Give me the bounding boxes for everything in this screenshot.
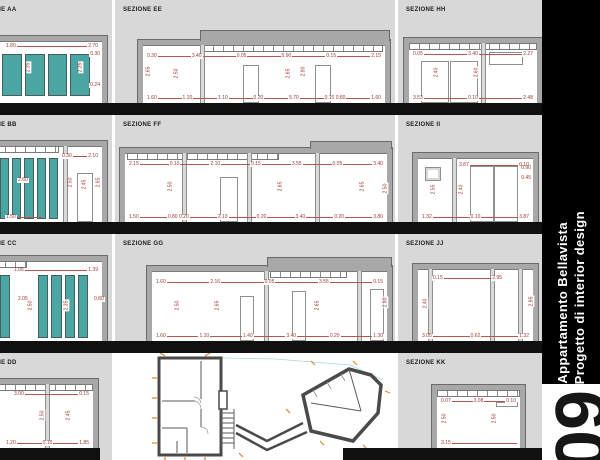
bottom-dimensions: 1.50 (5, 214, 42, 221)
dimension-label: 3.00 (13, 392, 25, 397)
dimension-label: 3.53 (412, 96, 424, 101)
cabinet-door (70, 54, 90, 96)
dimension-label: 1.60 (370, 96, 382, 101)
sheet-number: 09 (553, 390, 600, 460)
section-drawing-dd: 3.000.15 1.200.101.85 2.50 2.45 (0, 379, 98, 448)
dimension-label: 1.10 (198, 334, 210, 339)
section-drawing-aa: 1.802.70 2.35 2.35 0.30 0.24 (0, 36, 107, 103)
dimension-label: 2.16 (209, 280, 221, 285)
dimension-label: 1.20 (5, 441, 17, 446)
floor-plan-drawing (115, 353, 395, 460)
dimension-label: 0.20 (329, 334, 341, 339)
panel-key-plan (115, 353, 395, 460)
dimension-label: 2.50 (68, 177, 73, 189)
dimension-label: 0.05 (264, 280, 276, 285)
dimension-label: 3.40 (295, 215, 307, 220)
raised-ceiling (267, 257, 392, 267)
section-drawing-gg: 1.602.160.053.550.15 1.601.101.403.400.2… (147, 266, 392, 341)
dimension-label: 1.32 (518, 334, 530, 339)
ceiling-grid (0, 146, 59, 153)
section-title-hh: SEZIONE HH (406, 7, 446, 13)
section-drawing-ff: 2.150.102.100.153.550.053.40 1.500.80 0.… (120, 148, 392, 222)
dimension-label: 0.30 (146, 54, 158, 59)
dimension-label: 2.45 (82, 179, 87, 191)
cabinet-door (24, 158, 33, 219)
cabinet-door (2, 54, 22, 96)
section-title-jj: SEZIONE JJ (406, 241, 444, 247)
dimension-label: 2.48 (522, 96, 534, 101)
section-drawing-hh: 0.053.402.27 3.530.102.48 2.40 2.60 (404, 38, 542, 103)
floor-slab-dd (0, 448, 100, 460)
section-drawing-cc: 1.061.39 2.05 0.80 2.50 2.35 (0, 256, 107, 341)
dimension-label: 0.10 (169, 162, 181, 167)
dimension-label: 2.50 (28, 299, 33, 311)
dimension-label: 1.60 (146, 96, 158, 101)
dimension-label: 0.30 (89, 52, 101, 57)
dimension-label: 2.65 (96, 177, 101, 189)
dimension-label: 2.65 (146, 66, 151, 78)
dimension-label: 0.20 (256, 215, 268, 220)
panel-sezione-jj: SEZIONE JJ 0.152.95 3.050.621.32 2.40 2.… (398, 234, 542, 341)
project-titles: Appartamento Bellavista Progetto di inte… (542, 211, 600, 384)
dimension-label: 1.50 (128, 215, 140, 220)
section-drawing-ii: 3.870.10 1.320.103.87 2.55 2.40 0.90 0.4… (413, 153, 538, 222)
plan-right-room (303, 369, 381, 441)
wardrobe-doors (2, 54, 90, 96)
panel-sezione-hh: SEZIONE HH 0.053.402.27 3.530.102.48 2.4… (398, 0, 542, 103)
dimension-label: 2.45 (66, 409, 71, 421)
dimension-label: 2.50 (174, 68, 179, 80)
panel-sezione-cc: SEZIONE CC 1.061.39 2.05 0.80 2.50 2.35 (0, 234, 112, 341)
dimension-label: 2.35 (64, 299, 69, 311)
wardrobe-doors (0, 158, 58, 219)
dimension-label: 2.10 (209, 162, 221, 167)
plan-left-block (159, 358, 221, 455)
section-title-ee: SEZIONE EE (123, 7, 162, 13)
dimension-label: 0.10 (470, 215, 482, 220)
interior-wall (518, 269, 523, 341)
dimension-label: 0.10 (467, 96, 479, 101)
top-dimensions: 2.150.102.100.153.550.053.40 (128, 161, 384, 168)
section-title-dd: SEZIONE DD (0, 360, 17, 366)
top-dimensions: 0.152.95 (432, 275, 503, 282)
dimension-label: 0.45 (520, 176, 532, 181)
dimension-label: 0.10 0.80 (324, 96, 347, 101)
project-name: Appartamento Bellavista (555, 222, 570, 384)
dimension-label: 2.95 (491, 276, 503, 281)
dimension-label: 2.90 (383, 297, 388, 309)
dimension-label: 2.27 (522, 52, 534, 57)
dimension-label: 2.50 (168, 181, 173, 193)
dimension-label: 1.60 (155, 280, 167, 285)
dimension-label: 2.50 (492, 413, 497, 425)
dimension-label: 3.05 (421, 334, 433, 339)
dimension-label: 1.32 (421, 215, 433, 220)
top-dimensions: 3.870.10 (458, 162, 530, 169)
dimension-label: 0.62 (470, 334, 482, 339)
bottom-dimensions: 1.320.103.87 (421, 214, 530, 221)
dimension-label: 3.55 (291, 162, 303, 167)
dimension-label: 3.40 (467, 52, 479, 57)
top-dimensions: 1.061.39 (13, 267, 99, 274)
dimension-label: 3.15 (440, 441, 452, 446)
dimension-label: 0.15 (372, 280, 384, 285)
section-title-aa: SEZIONE AA (0, 7, 16, 13)
dimension-label: 3.55 (318, 280, 330, 285)
floor-slab-row2 (0, 222, 542, 234)
top-dimensions: 0.073.080.10 (440, 398, 517, 405)
dimension-label: 2.65 (360, 181, 365, 193)
staircase (221, 409, 234, 449)
dimension-label: 1.10 (182, 96, 194, 101)
dimension-label: 2.65 (215, 299, 220, 311)
dimension-label: 2.55 (431, 183, 436, 195)
project-subtitle: Progetto di interior design (572, 211, 587, 384)
section-title-gg: SEZIONE GG (123, 241, 163, 247)
dimension-label: 0.15 (78, 392, 90, 397)
dimension-label: 2.65 (315, 299, 320, 311)
dimension-label: 2.50 (383, 183, 388, 195)
dimension-label: 1.50 (5, 215, 17, 220)
dimension-label: 3.87 (458, 163, 470, 168)
section-drawing-jj: 0.152.95 3.050.621.32 2.40 2.95 (413, 264, 538, 341)
top-dimensions: 0.303.400.055.900.152.15 (146, 53, 382, 60)
dimension-label: 0.24 (89, 83, 101, 88)
panel-sezione-aa: SEZIONE AA 1.802.70 2.35 2.35 0.30 0.24 (0, 0, 112, 103)
ceiling-grid (270, 271, 347, 278)
dimension-label: 5.90 (281, 54, 293, 59)
dimension-label: 2.60 (474, 67, 479, 79)
dimension-label: 0.10 (42, 441, 54, 446)
dimension-label: 0.05 (236, 54, 248, 59)
dimension-label: 2.65 (286, 68, 291, 80)
dimension-label: 0.90 (520, 166, 532, 171)
raised-ceiling (200, 30, 390, 41)
dimension-label: 2.60 (17, 178, 29, 183)
dimension-label: 0.15 (325, 54, 337, 59)
cabinet-door (0, 275, 10, 338)
bottom-dimensions: 3.050.621.32 (421, 333, 530, 340)
dimension-label: 2.40 (434, 67, 439, 79)
bottom-dimensions: 3.530.102.48 (412, 95, 534, 102)
section-drawing-bb: 0.302.10 1.50 2.60 2.50 2.45 2.65 (0, 141, 107, 222)
dimension-label: 2.10 (217, 215, 229, 220)
top-dimensions: 0.053.402.27 (412, 51, 534, 58)
bottom-dimensions: 1.601.101.403.400.201.30 (155, 333, 384, 340)
wall-picture (425, 167, 441, 181)
dimension-label: 1.60 (155, 334, 167, 339)
dimension-label: 1.06 (13, 268, 25, 273)
dimension-label: 0.07 (440, 399, 452, 404)
dimension-label: 2.50 (175, 299, 180, 311)
drawing-sheet: SEZIONE AA 1.802.70 2.35 2.35 0.30 0.24 … (0, 0, 600, 460)
wardrobe-door-edge (0, 275, 10, 338)
section-drawing-ee: 0.303.400.055.900.152.15 1.601.101.100.2… (138, 40, 390, 103)
bottom-dimensions: 1.200.101.85 (5, 440, 90, 447)
bottom-dimensions: 1.601.101.100.205.700.10 0.801.60 (146, 95, 382, 102)
dimension-label: 1.30 (372, 334, 384, 339)
section-title-kk: SEZIONE KK (406, 360, 446, 366)
panel-sezione-ee: SEZIONE EE 0.303.400.055.900.152.15 1.60… (115, 0, 395, 103)
top-dimensions: 1.802.70 (5, 43, 99, 50)
dimension-label: 1.10 (217, 96, 229, 101)
section-title-cc: SEZIONE CC (0, 241, 17, 247)
dimension-label: 3.87 (518, 215, 530, 220)
cabinet-door (12, 158, 21, 219)
section-title-ii: SEZIONE II (406, 122, 440, 128)
cabinet-door (25, 54, 45, 96)
floor-slab-row3 (0, 341, 542, 353)
cabinet-door (38, 275, 48, 338)
floor-slab-kk (343, 448, 542, 460)
dimension-label: 2.50 (442, 413, 447, 425)
dimension-label: 2.90 (301, 66, 306, 78)
bottom-dimensions: 1.500.80 0.202.100.203.400.203.80 (128, 214, 384, 221)
dimension-label: 2.35 (26, 61, 31, 73)
dimension-label: 0.20 (253, 96, 265, 101)
dimension-label: 1.40 (242, 334, 254, 339)
ceiling-grid (127, 153, 279, 160)
dimension-label: 2.70 (87, 44, 99, 49)
dimension-label: 0.15 (432, 276, 444, 281)
dimension-label: 0.15 (250, 162, 262, 167)
cabinet-door (49, 158, 58, 219)
dimension-label: 3.40 (372, 162, 384, 167)
floor-slab-row1 (0, 103, 542, 115)
cabinet-door (78, 275, 88, 338)
panel-sezione-bb: SEZIONE BB 0.302.10 1.50 2.60 2.50 2.45 … (0, 115, 112, 222)
top-dimensions: 0.302.10 (61, 153, 99, 160)
panel-sezione-dd: SEZIONE DD 3.000.15 1.200.101.85 2.50 2.… (0, 353, 112, 460)
dimension-label: 2.40 (459, 183, 464, 195)
dimension-label: 0.05 (332, 162, 344, 167)
ceiling-grid (203, 45, 383, 52)
dimension-label: 1.39 (87, 268, 99, 273)
cabinet-door (37, 158, 46, 219)
dimension-label: 5.70 (288, 96, 300, 101)
interior-wall (452, 158, 457, 222)
sheet-number-corner: 09 (542, 384, 600, 460)
section-title-ff: SEZIONE FF (123, 122, 161, 128)
dimension-label: 0.80 (93, 297, 105, 302)
panel-sezione-gg: SEZIONE GG 1.602.160.053.550.15 1.601.10… (115, 234, 395, 341)
dimension-label: 0.10 (505, 399, 517, 404)
section-drawing-kk: 0.073.080.10 3.15 2.50 2.50 (432, 385, 525, 448)
dimension-label: 2.15 (370, 54, 382, 59)
dimension-label: 2.15 (128, 162, 140, 167)
dimension-label: 0.30 (61, 154, 73, 159)
dimension-label: 2.95 (529, 296, 534, 308)
section-title-bb: SEZIONE BB (0, 122, 17, 128)
raised-ceiling (310, 141, 392, 149)
panel-sezione-kk: SEZIONE KK 0.073.080.10 3.15 2.50 2.50 (398, 353, 542, 460)
dimension-label: 3.40 (285, 334, 297, 339)
dimension-label: 0.20 (333, 215, 345, 220)
dimension-label: 1.85 (78, 441, 90, 446)
panel-sezione-ff: SEZIONE FF 2.150.102.100.153.550.053.40 … (115, 115, 395, 222)
dimension-label: 2.35 (78, 61, 83, 73)
ceiling-grid (409, 43, 537, 50)
cabinet-door (48, 54, 68, 96)
dimension-label: 3.08 (473, 399, 485, 404)
dimension-label: 2.50 (40, 409, 45, 421)
top-dimensions: 3.000.15 (13, 391, 90, 398)
dimension-label: 3.80 (372, 215, 384, 220)
corridor-walls (236, 423, 307, 450)
top-dimensions: 1.602.160.053.550.15 (155, 279, 384, 286)
dimension-label: 3.40 (191, 54, 203, 59)
dimension-label: 2.10 (87, 154, 99, 159)
dimension-label: 0.80 0.20 (167, 215, 190, 220)
cabinet-door (51, 275, 61, 338)
dimension-label: 2.40 (423, 298, 428, 310)
dimension-label: 1.80 (5, 44, 17, 49)
bottom-dimensions: 3.15 (440, 440, 517, 447)
cabinet-door (0, 158, 9, 219)
panel-sezione-ii: SEZIONE II 3.870.10 1.320.103.87 2.55 2.… (398, 115, 542, 222)
dimension-label: 2.65 (278, 181, 283, 193)
dimension-label: 0.05 (412, 52, 424, 57)
ceiling-grid (437, 390, 520, 397)
plan-nook (219, 391, 227, 409)
